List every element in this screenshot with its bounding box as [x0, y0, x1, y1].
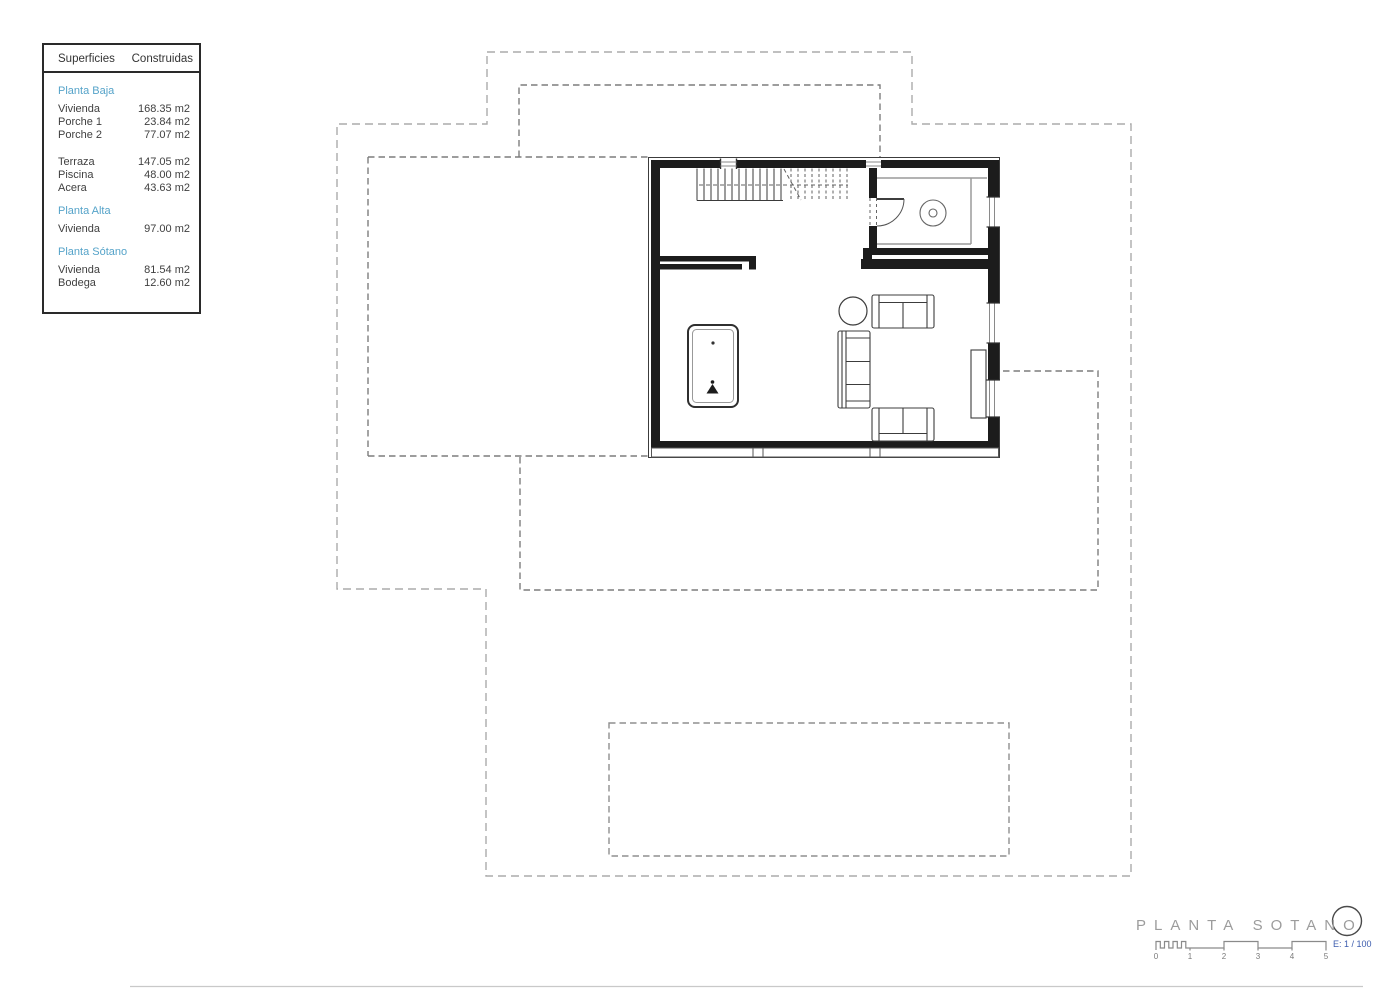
scale-tick-5: 5 [1324, 952, 1328, 961]
row-label: Piscina [58, 169, 93, 182]
table-row: Terraza 147.05 m2 [58, 156, 190, 169]
row-value: 147.05 m2 [138, 156, 190, 169]
row-label: Vivienda [58, 223, 100, 236]
row-value: 97.00 m2 [144, 223, 190, 236]
table-row: Vivienda 81.54 m2 [58, 264, 190, 277]
table-row: Vivienda 97.00 m2 [58, 223, 190, 236]
group-exteriores: Terraza 147.05 m2 Piscina 48.00 m2 Acera… [58, 156, 190, 195]
house-walls [649, 158, 1000, 458]
row-label: Porche 2 [58, 129, 102, 142]
opening-top-entry [866, 159, 881, 170]
scale-tick-2: 2 [1222, 952, 1226, 961]
row-label: Bodega [58, 277, 96, 290]
window-top [721, 159, 737, 170]
table-row: Porche 1 23.84 m2 [58, 116, 190, 129]
sofa-top [872, 295, 934, 328]
row-value: 48.00 m2 [144, 169, 190, 182]
scale-tick-3: 3 [1256, 952, 1260, 961]
surfaces-table-body: Planta Baja Vivienda 168.35 m2 Porche 1 … [44, 73, 199, 290]
group-planta-sotano: Planta Sótano Vivienda 81.54 m2 Bodega 1… [58, 246, 190, 290]
row-value: 77.07 m2 [144, 129, 190, 142]
row-value: 23.84 m2 [144, 116, 190, 129]
row-value: 168.35 m2 [138, 103, 190, 116]
table-row: Piscina 48.00 m2 [58, 169, 190, 182]
column-header-superficies: Superficies [58, 53, 115, 66]
table-row: Bodega 12.60 m2 [58, 277, 190, 290]
group-title-planta-alta: Planta Alta [58, 205, 190, 218]
washbasin-icon [920, 200, 946, 226]
plan-title: PLANTA SOTANO [1136, 917, 1363, 934]
scale-tick-1: 1 [1188, 952, 1192, 961]
round-side-table [839, 297, 867, 325]
scale-tick-0: 0 [1154, 952, 1158, 961]
group-title-planta-sotano: Planta Sótano [58, 246, 190, 259]
billiard-table [688, 325, 738, 407]
row-value: 12.60 m2 [144, 277, 190, 290]
table-row: Vivienda 168.35 m2 [58, 103, 190, 116]
floorplan-drawing [0, 0, 1400, 989]
column-header-construidas: Construidas [132, 53, 193, 66]
surfaces-table: Superficies Construidas Planta Baja Vivi… [42, 43, 201, 314]
pool-outline-dashed [609, 723, 1009, 856]
group-planta-alta: Planta Alta Vivienda 97.00 m2 [58, 205, 190, 236]
row-label: Acera [58, 182, 87, 195]
row-label: Vivienda [58, 264, 100, 277]
row-label: Terraza [58, 156, 95, 169]
row-label: Porche 1 [58, 116, 102, 129]
row-value: 43.63 m2 [144, 182, 190, 195]
group-title-planta-baja: Planta Baja [58, 85, 190, 98]
group-planta-baja: Planta Baja Vivienda 168.35 m2 Porche 1 … [58, 85, 190, 142]
floorplan-page: Superficies Construidas Planta Baja Vivi… [0, 0, 1400, 989]
row-label: Vivienda [58, 103, 100, 116]
sofa-left [838, 331, 870, 408]
scale-ratio-label: E: 1 / 100 [1333, 939, 1372, 949]
table-row: Porche 2 77.07 m2 [58, 129, 190, 142]
scale-tick-4: 4 [1290, 952, 1294, 961]
sofa-bottom [872, 408, 934, 441]
tv-cabinet [971, 350, 986, 418]
row-value: 81.54 m2 [144, 264, 190, 277]
scale-bar [1156, 942, 1326, 951]
surfaces-table-header: Superficies Construidas [44, 45, 199, 73]
table-row: Acera 43.63 m2 [58, 182, 190, 195]
